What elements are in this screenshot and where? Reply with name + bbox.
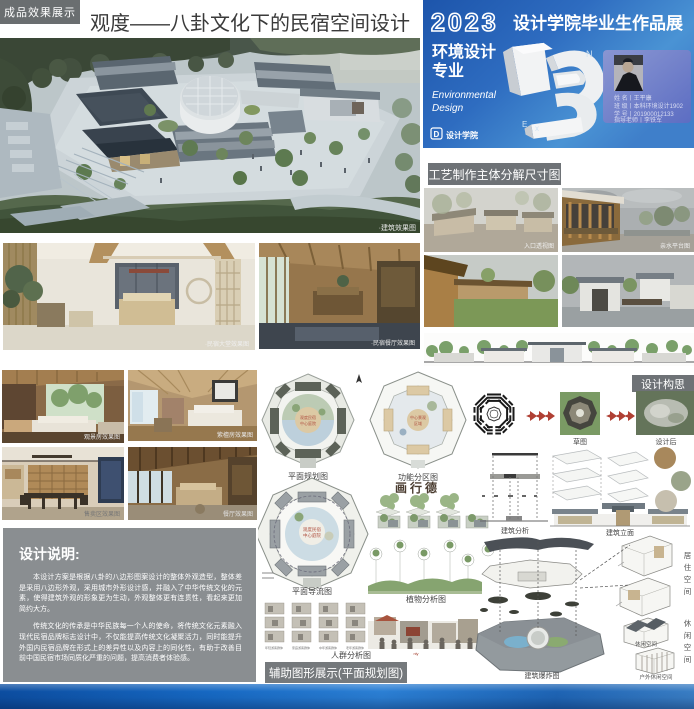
svg-text:·民宿餐厅效果图: ·民宿餐厅效果图 <box>371 339 415 347</box>
svg-text:中心景观: 中心景观 <box>410 414 426 420</box>
svg-text:平面导流图: 平面导流图 <box>292 586 332 596</box>
svg-text:·建筑效果图: ·建筑效果图 <box>379 223 416 232</box>
svg-text:休闲空间: 休闲空间 <box>635 640 657 648</box>
svg-text:·民宿大堂效果图: ·民宿大堂效果图 <box>205 340 249 348</box>
svg-text:设计学院毕业生作品展: 设计学院毕业生作品展 <box>513 13 683 33</box>
svg-text:N: N <box>586 49 593 59</box>
svg-text:Design: Design <box>432 103 464 114</box>
svg-text:E: E <box>522 120 527 129</box>
svg-text:人群分析图: 人群分析图 <box>331 650 371 660</box>
svg-text:老年游客群体: 老年游客群体 <box>346 645 364 650</box>
svg-text:区域: 区域 <box>414 420 422 426</box>
svg-text:学 号丨201900012133: 学 号丨201900012133 <box>614 110 674 118</box>
svg-text:画 行 德: 画 行 德 <box>395 480 437 495</box>
svg-text:姓 名丨王平康: 姓 名丨王平康 <box>614 94 652 102</box>
svg-text:Environmental: Environmental <box>432 90 497 101</box>
svg-text:环境设计: 环境设计 <box>432 42 496 61</box>
svg-text:观度民宿: 观度民宿 <box>303 526 321 533</box>
svg-text:D: D <box>434 130 440 139</box>
svg-text:专业: 专业 <box>432 61 464 80</box>
svg-text:入口透视图: 入口透视图 <box>524 242 554 250</box>
svg-text:餐厅效果图: 餐厅效果图 <box>223 510 253 518</box>
svg-text:中心庭院: 中心庭院 <box>303 532 321 539</box>
svg-text:建筑爆炸图: 建筑爆炸图 <box>525 671 560 680</box>
svg-text:设计学院: 设计学院 <box>446 130 478 140</box>
svg-text:班 级丨本科环境设计1902: 班 级丨本科环境设计1902 <box>614 102 684 110</box>
svg-text:nly: nly <box>413 651 418 656</box>
svg-text:家庭游客群体: 家庭游客群体 <box>292 645 310 650</box>
svg-text:指导老师丨李铁军: 指导老师丨李铁军 <box>614 116 662 124</box>
svg-text:户外休闲空间: 户外休闲空间 <box>639 673 672 680</box>
svg-text:年轻游客群体: 年轻游客群体 <box>265 645 283 650</box>
svg-text:中心庭院: 中心庭院 <box>300 420 316 426</box>
svg-text:亲水平台图: 亲水平台图 <box>660 242 690 250</box>
svg-text:观景房效果图: 观景房效果图 <box>84 433 120 441</box>
svg-text:植物分析图: 植物分析图 <box>406 594 446 604</box>
svg-text:售卖区效果图: 售卖区效果图 <box>84 510 120 518</box>
svg-text:中年游客群体: 中年游客群体 <box>319 645 337 650</box>
svg-text:紫檀房效果图: 紫檀房效果图 <box>217 431 253 439</box>
svg-text:2023: 2023 <box>431 9 499 37</box>
svg-text:x: x <box>535 124 539 133</box>
svg-text:观度民宿: 观度民宿 <box>300 414 316 420</box>
